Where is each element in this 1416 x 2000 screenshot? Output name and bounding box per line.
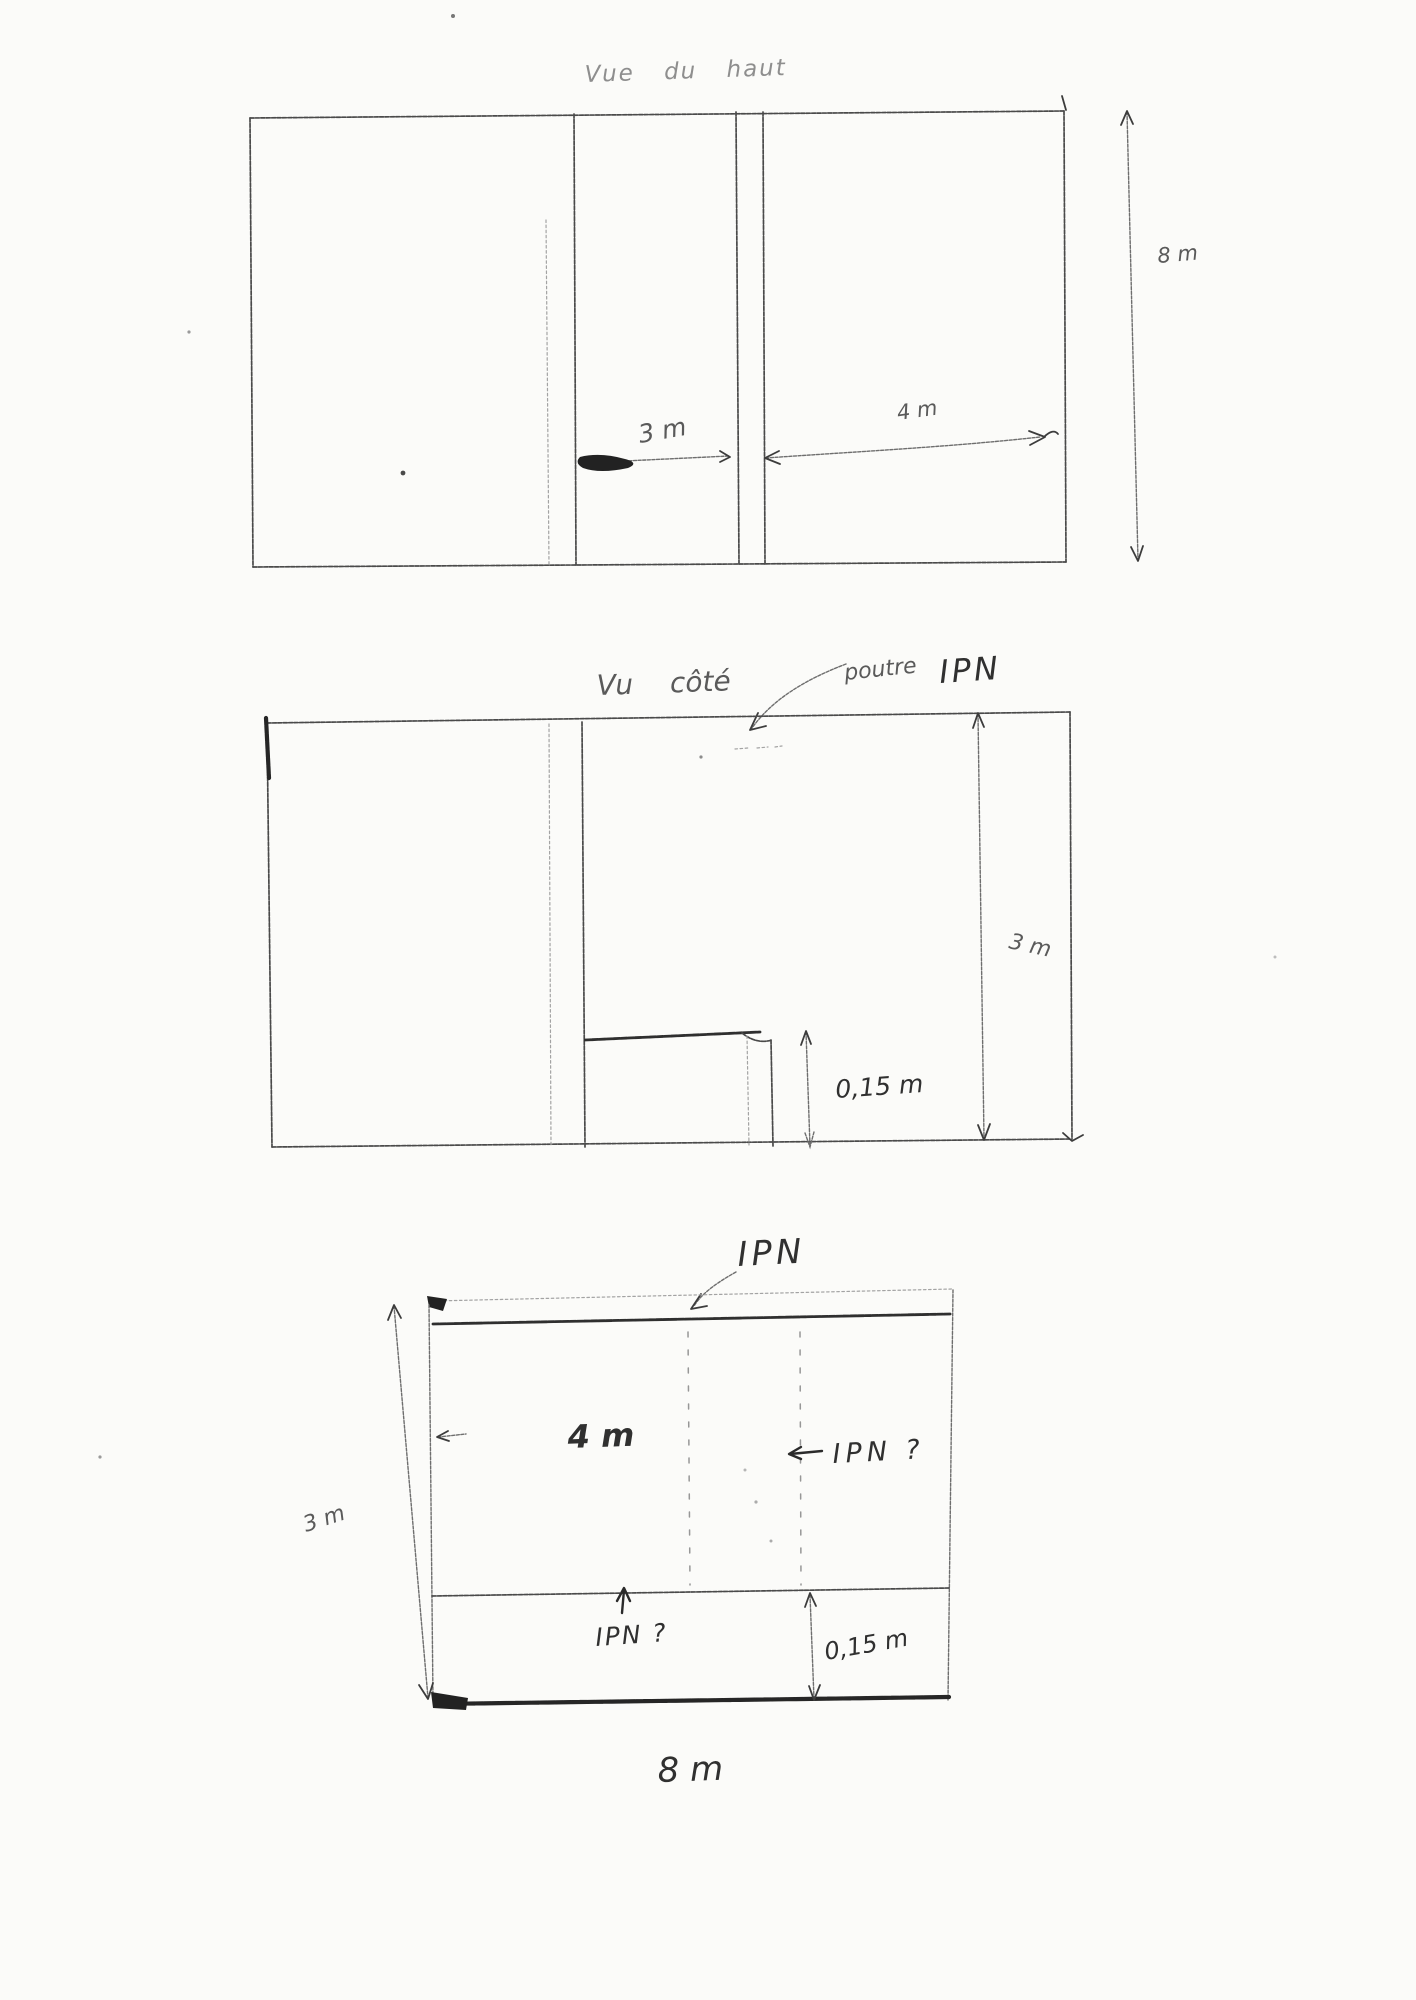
- front-view-ipn-query-arrow: [789, 1447, 822, 1459]
- top-view-outline: [250, 96, 1066, 567]
- ipn-beam-line: [433, 1314, 951, 1324]
- top-view-diagram: Vue du haut 3 m 4 m: [250, 55, 1199, 567]
- front-view-dim-step: 0,15 m: [822, 1624, 910, 1666]
- top-view-dim-4m: 4 m: [895, 396, 938, 425]
- front-view-dim-3m: 3 m: [300, 1501, 348, 1538]
- top-view-dim-3m: 3 m: [636, 412, 689, 449]
- front-view-left-edge-tick: [437, 1431, 466, 1441]
- front-view-title-arrow: [691, 1272, 736, 1309]
- top-view-title: Vue du haut: [584, 55, 787, 88]
- scanned-sketch-sheet: Vue du haut 3 m 4 m: [0, 0, 1416, 2000]
- top-view-dim-8m: 8 m: [1156, 241, 1198, 268]
- top-view-dim-3m-arrow: [578, 451, 730, 471]
- side-view-title: Vu côté: [596, 664, 731, 702]
- paper-specks: [98, 14, 1276, 1459]
- side-view-beam-pointer-arrow: [750, 664, 846, 730]
- front-view-hidden-walls: [688, 1332, 801, 1585]
- front-view-beam-query: IPN ?: [832, 1434, 926, 1470]
- side-view-diagram: Vu côté poutre IPN: [266, 649, 1083, 1147]
- side-view-outline: [266, 712, 1083, 1147]
- front-view-bottom-ipn-arrow: [617, 1588, 630, 1613]
- side-view-interior-wall: [549, 722, 585, 1147]
- pencil-sketch-canvas: Vue du haut 3 m 4 m: [0, 0, 1416, 2000]
- front-view-step-arrow: [805, 1593, 820, 1700]
- side-view-dim-height: 3 m: [1007, 929, 1054, 962]
- side-view-beam-acronym: IPN: [938, 649, 1002, 691]
- front-view-title: IPN: [736, 1231, 806, 1275]
- top-view-interior-walls: [546, 112, 765, 565]
- front-view-dim-4m: 4 m: [566, 1416, 635, 1456]
- top-view-height-arrow: [1121, 111, 1143, 561]
- front-view-dim-8m: 8 m: [657, 1749, 724, 1791]
- front-view-divider-line: [432, 1588, 950, 1596]
- side-view-dim-step: 0,15 m: [834, 1069, 924, 1104]
- side-view-beam-dashes: [699, 746, 782, 759]
- side-view-height-arrow: [973, 713, 990, 1140]
- front-view-bottom-beam-query: IPN ?: [594, 1618, 668, 1652]
- front-view-diagram: IPN 4 m IPN ?: [300, 1231, 953, 1791]
- top-view-dim-4m-arrow: [765, 431, 1058, 464]
- front-view-height-arrow: [388, 1305, 433, 1699]
- side-view-step-arrow: [801, 1031, 814, 1147]
- side-view-step: [585, 1032, 773, 1146]
- side-view-beam-word: poutre: [842, 654, 918, 687]
